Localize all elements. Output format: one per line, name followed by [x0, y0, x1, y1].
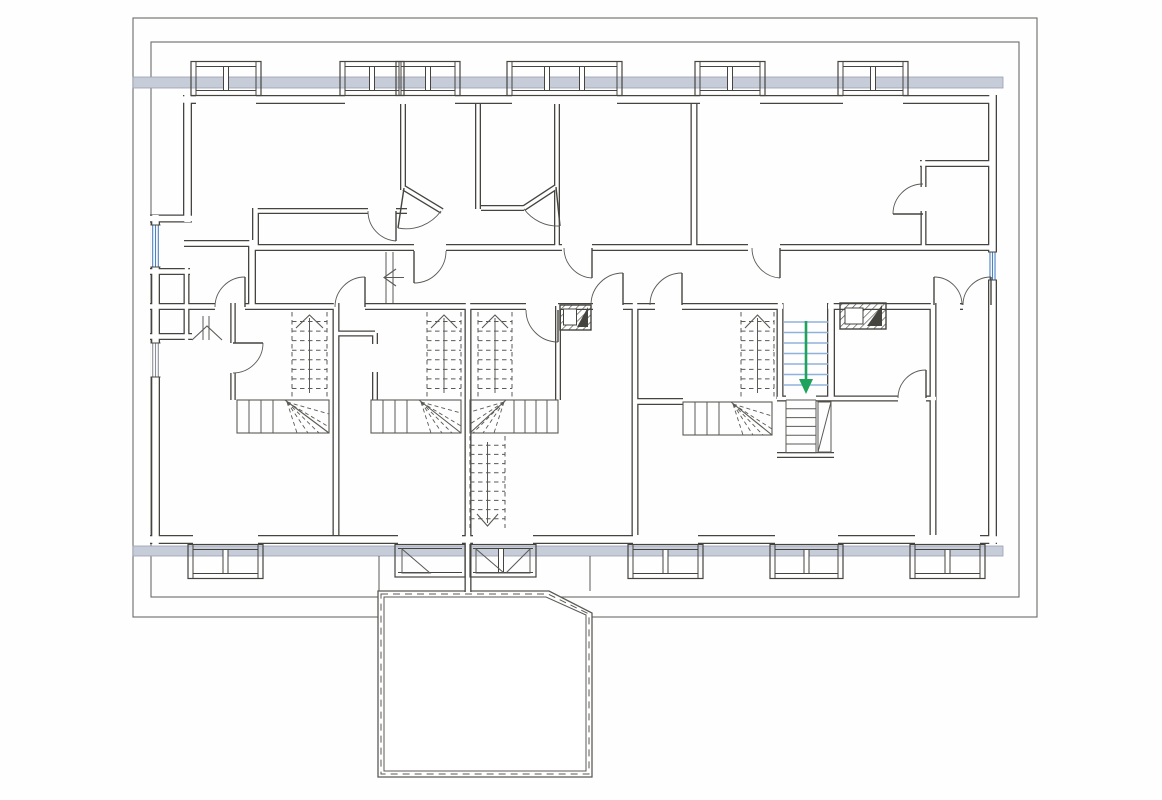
floor-plan-drawing: [0, 0, 1162, 800]
floor-plan-page: [0, 0, 1162, 800]
